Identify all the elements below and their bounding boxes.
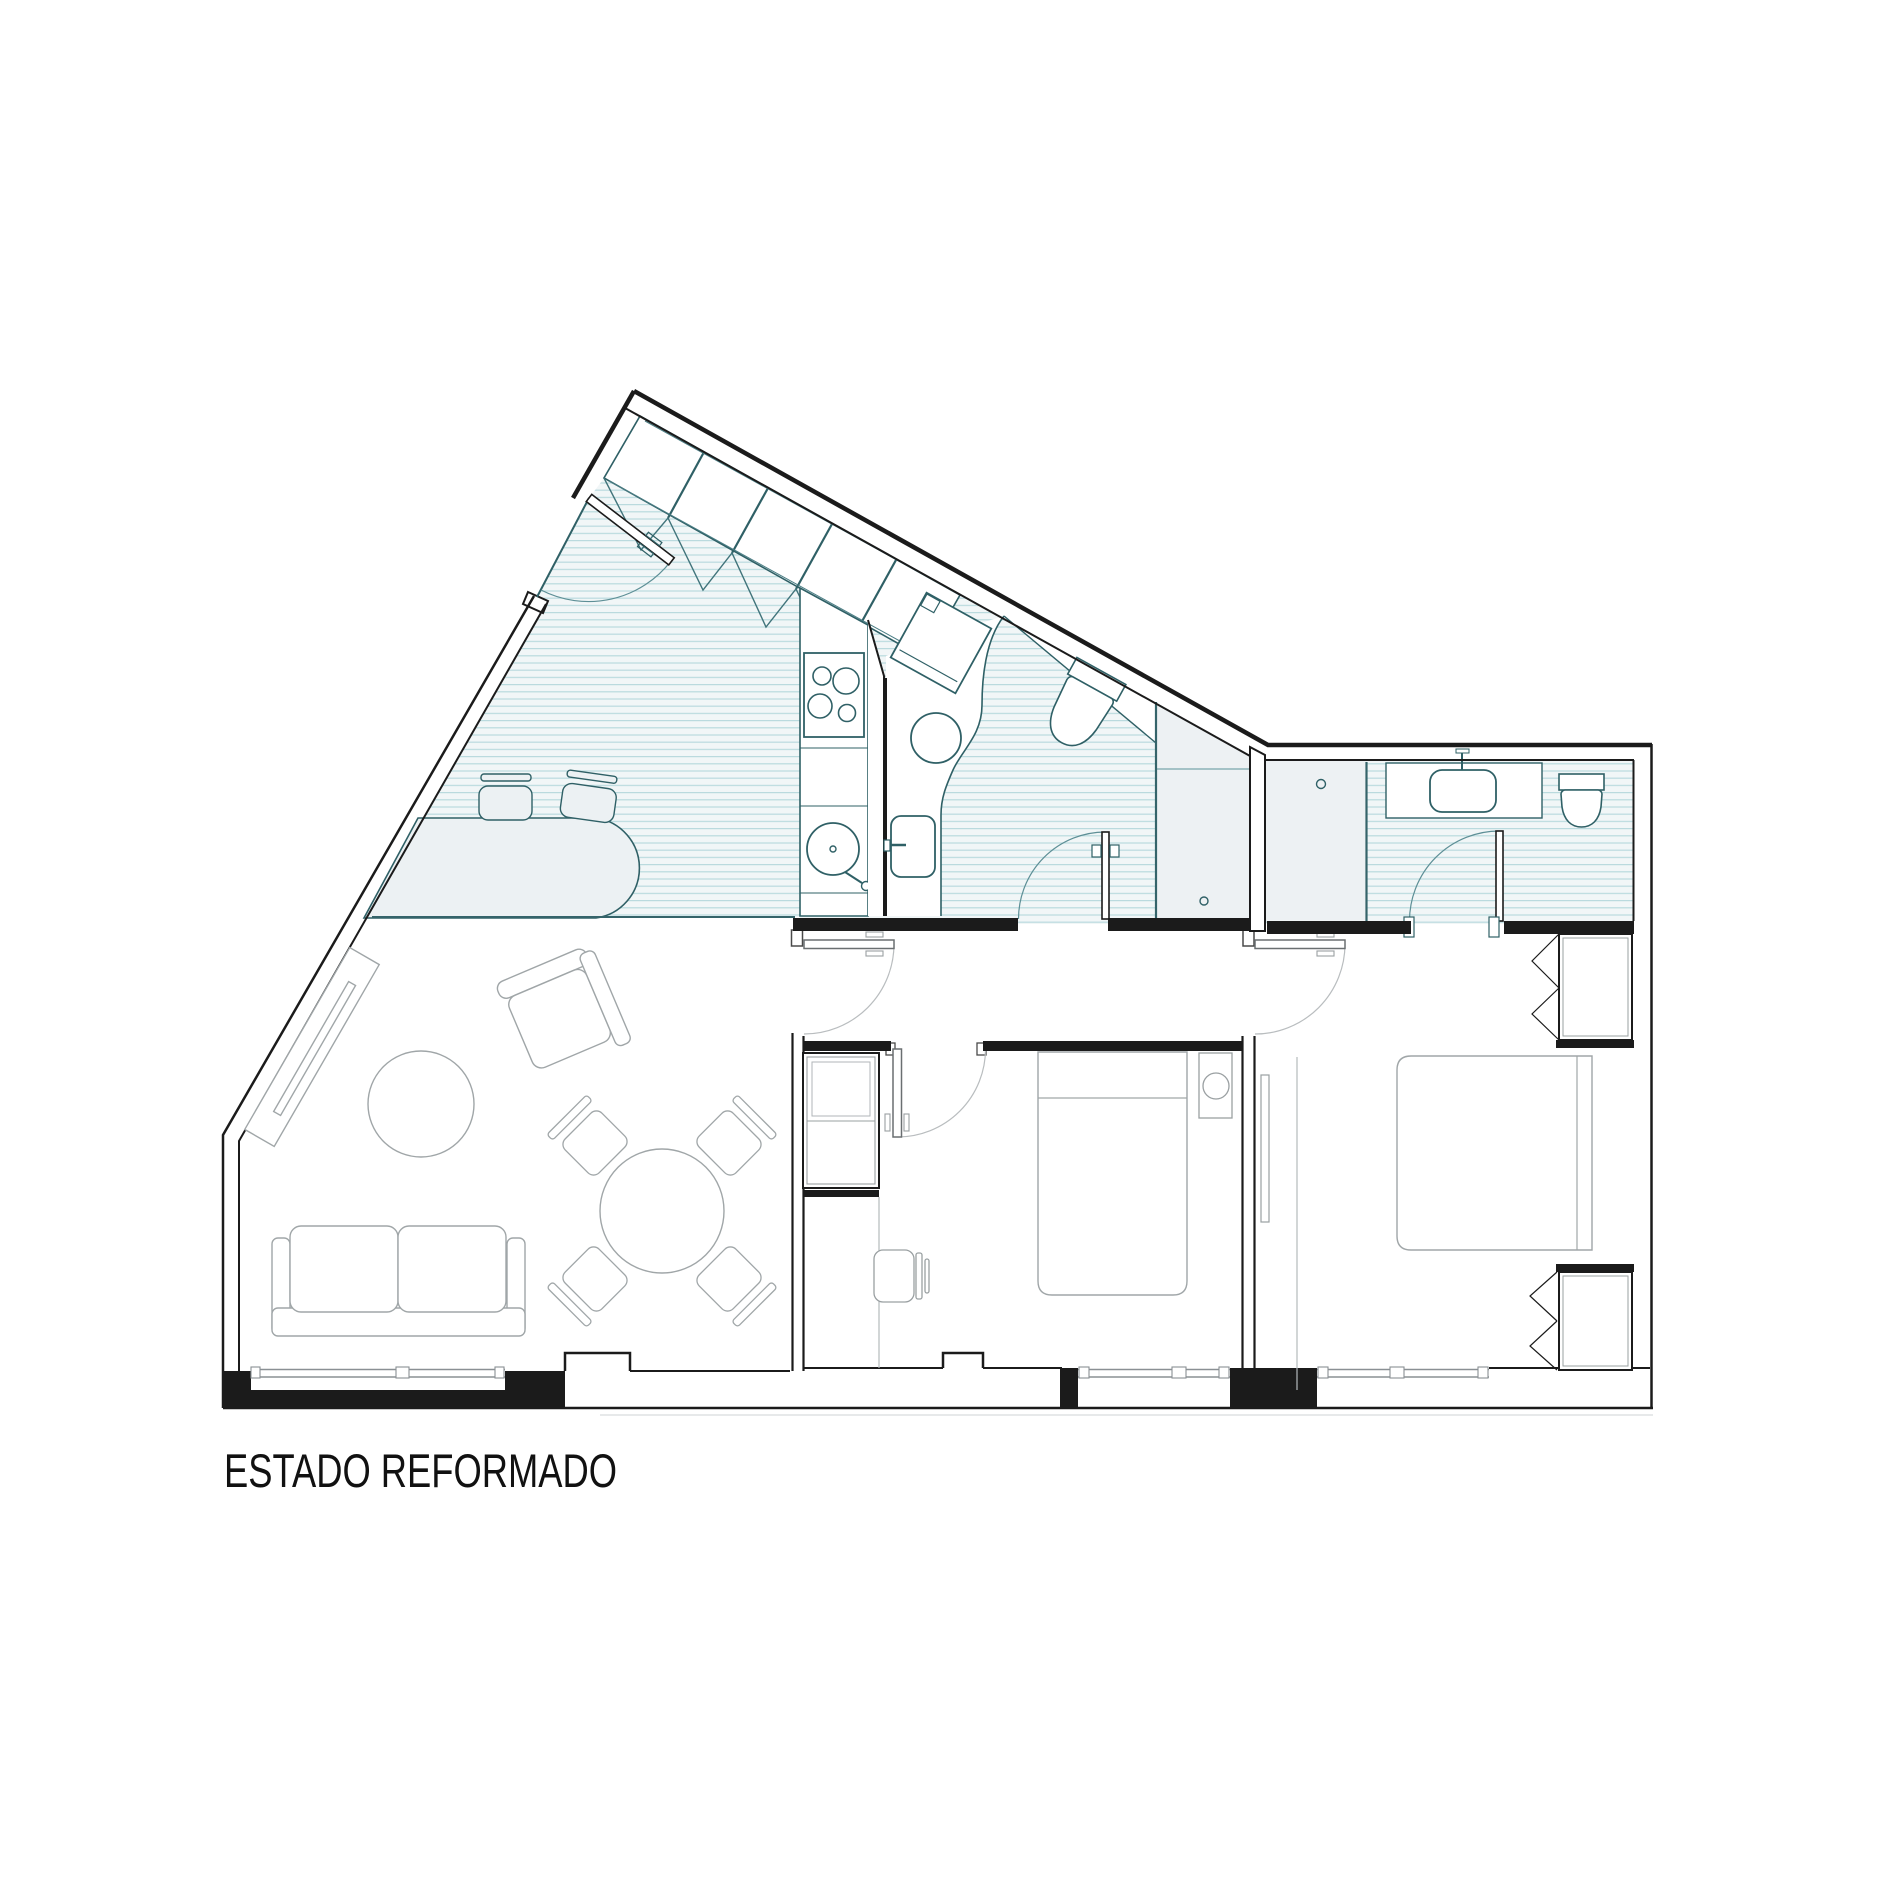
svg-text:ESTADO REFORMADO: ESTADO REFORMADO bbox=[224, 1444, 617, 1497]
